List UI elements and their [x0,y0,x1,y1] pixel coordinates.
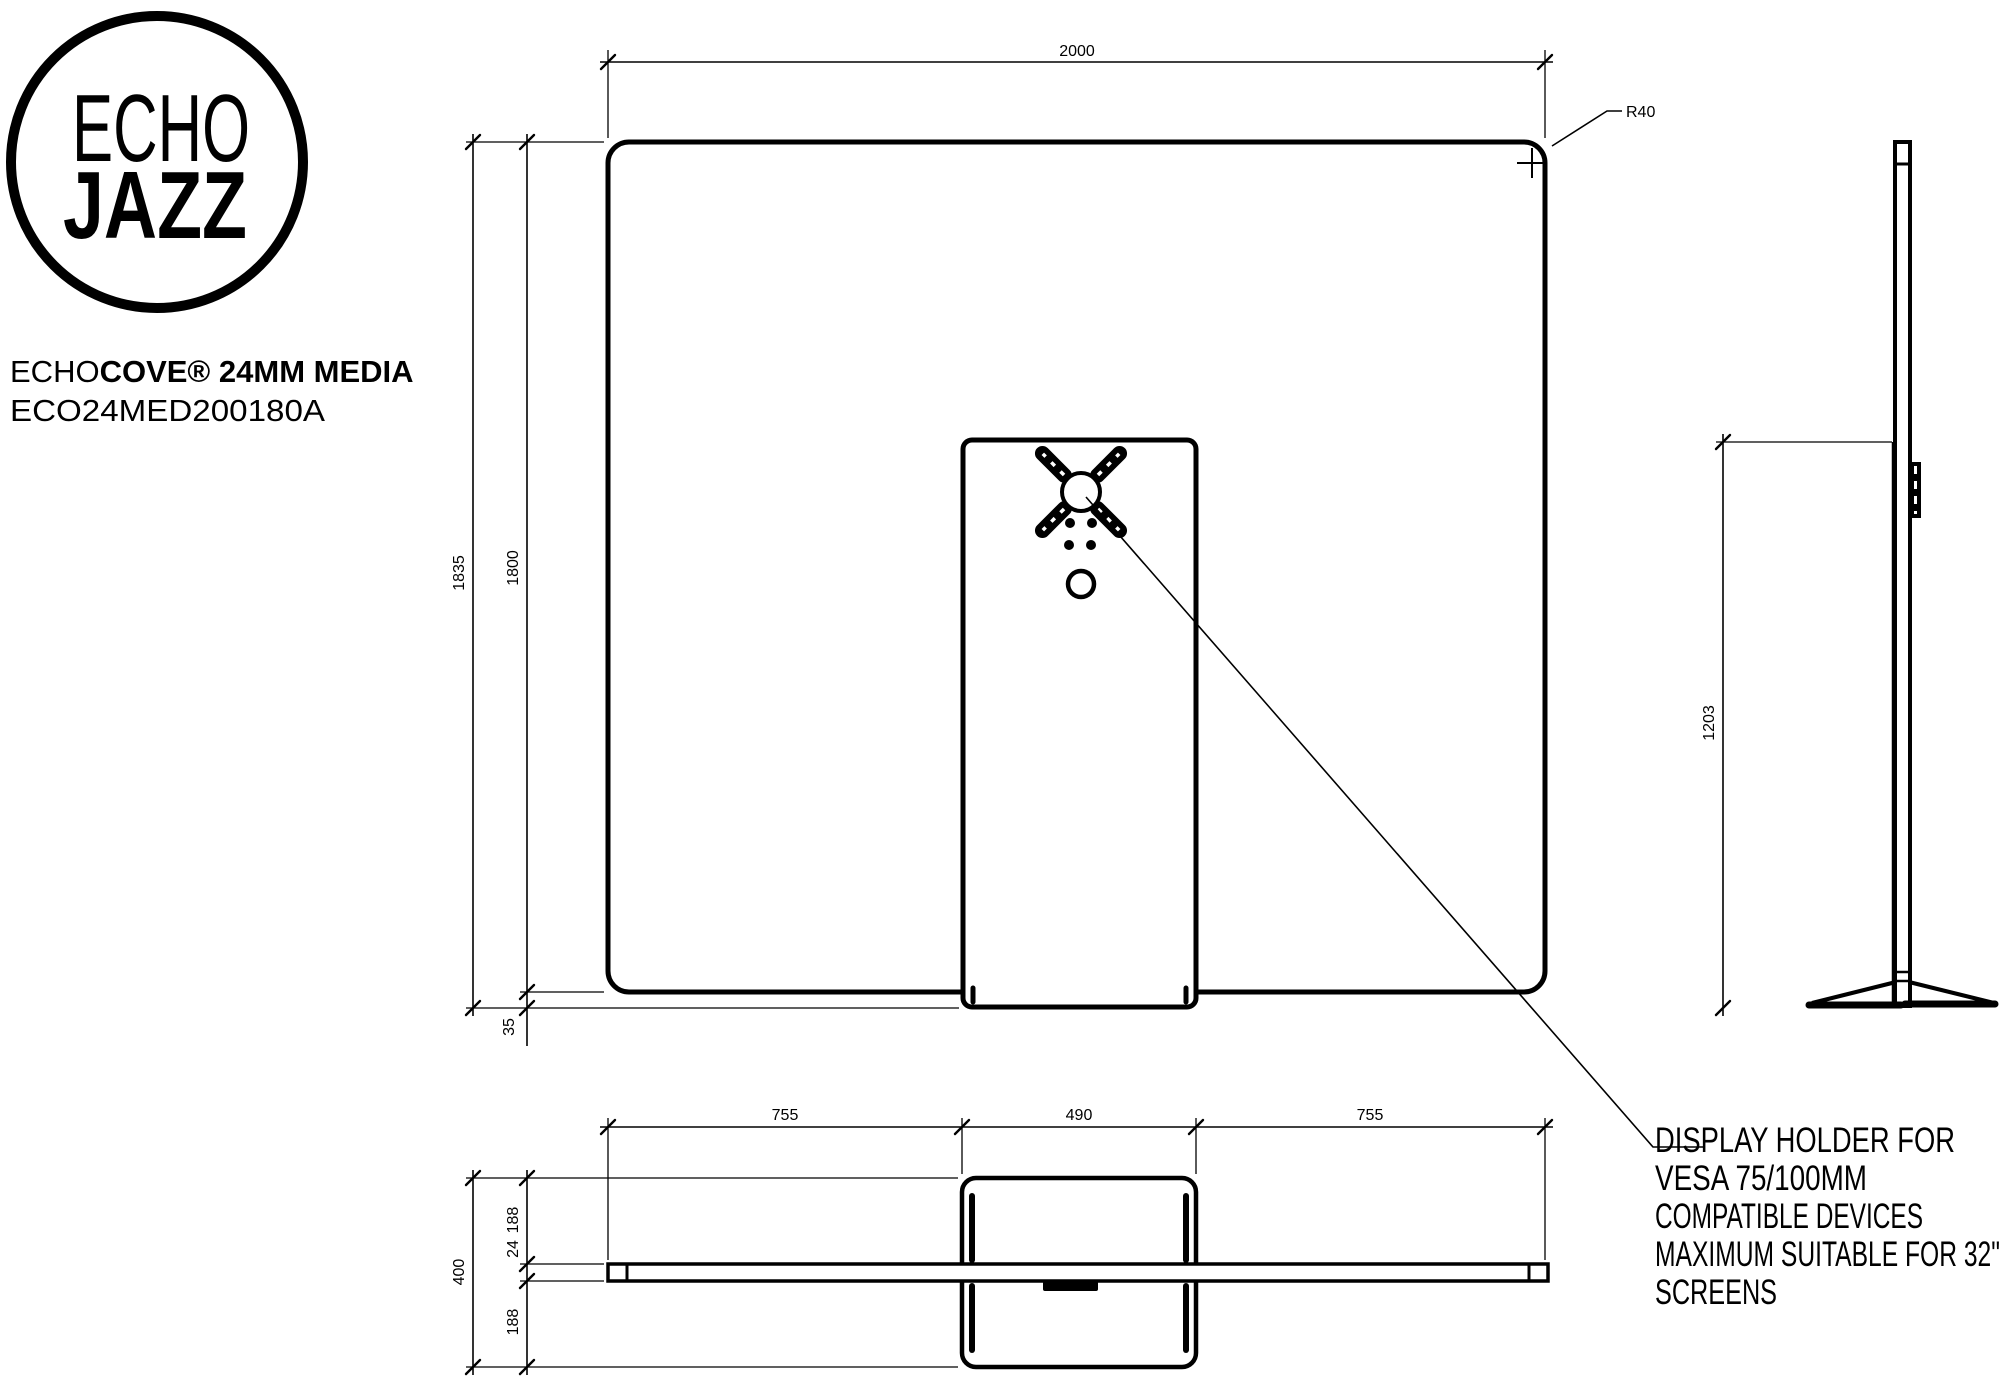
dim-width: 2000 [600,43,1553,138]
dim-seg-right-label: 755 [1357,1107,1384,1124]
note-line-4: MAXIMUM SUITABLE FOR 32" [1655,1235,2000,1274]
echojazz-logo: ECHO JAZZ [11,16,303,308]
note-line-1: DISPLAY HOLDER FOR [1655,1121,1955,1160]
mount-hole-dot [1086,540,1096,550]
dim-radius-label: R40 [1626,104,1655,121]
panel-plan-strip [608,1264,1548,1281]
dim-holder-height: 1203 [1701,434,1892,1016]
mount-hole-dot [1064,540,1074,550]
mount-hole-dot [1087,518,1097,528]
note-line-2: VESA 75/100MM [1655,1159,1867,1198]
dim-corner-radius: R40 [1552,104,1655,146]
dim-panel-height-label: 1800 [505,550,522,586]
mount-column-outline [963,440,1196,1007]
side-view: 1203 [1701,142,1995,1016]
title-block: ECHOCOVE® 24MM MEDIA ECO24MED200180A [10,354,414,428]
dim-base-drop-label: 35 [501,1018,518,1036]
logo-word-jazz: JAZZ [63,152,247,259]
product-title: ECHOCOVE® 24MM MEDIA [10,354,414,389]
note-line-5: SCREENS [1655,1273,1777,1312]
display-holder-bracket-icon [1910,462,1921,518]
front-view: 2000 R40 1835 1800 35 [451,43,1655,1046]
cable-slot [1043,1281,1098,1291]
technical-drawing-sheet: ECHO JAZZ ECHOCOVE® 24MM MEDIA ECO24MED2… [0,0,2000,1380]
dim-seg-left-label: 755 [772,1107,799,1124]
panel-side-outline [1895,142,1910,1006]
dim-depth-front-label: 188 [505,1207,522,1234]
dim-panel-thickness-label: 24 [505,1240,522,1258]
drawing-canvas: ECHO JAZZ ECHOCOVE® 24MM MEDIA ECO24MED2… [0,0,2000,1380]
bottom-view: 755 490 755 400 188 24 188 [451,1107,1553,1375]
dim-depth-back-label: 188 [505,1309,522,1336]
product-title-light: ECHO [10,354,100,389]
cable-grommet-icon [1068,571,1094,597]
dim-depth-total-label: 400 [451,1259,468,1286]
note-line-3: COMPATIBLE DEVICES [1655,1197,1923,1236]
dim-holder-height-label: 1203 [1701,705,1718,741]
dim-seg-center-label: 490 [1066,1107,1093,1124]
product-title-bold: COVE® 24MM MEDIA [100,354,414,389]
dim-total-height-label: 1835 [451,555,468,591]
dim-width-label: 2000 [1059,43,1095,60]
product-code: ECO24MED200180A [10,393,325,428]
mount-hole-dot [1065,518,1075,528]
